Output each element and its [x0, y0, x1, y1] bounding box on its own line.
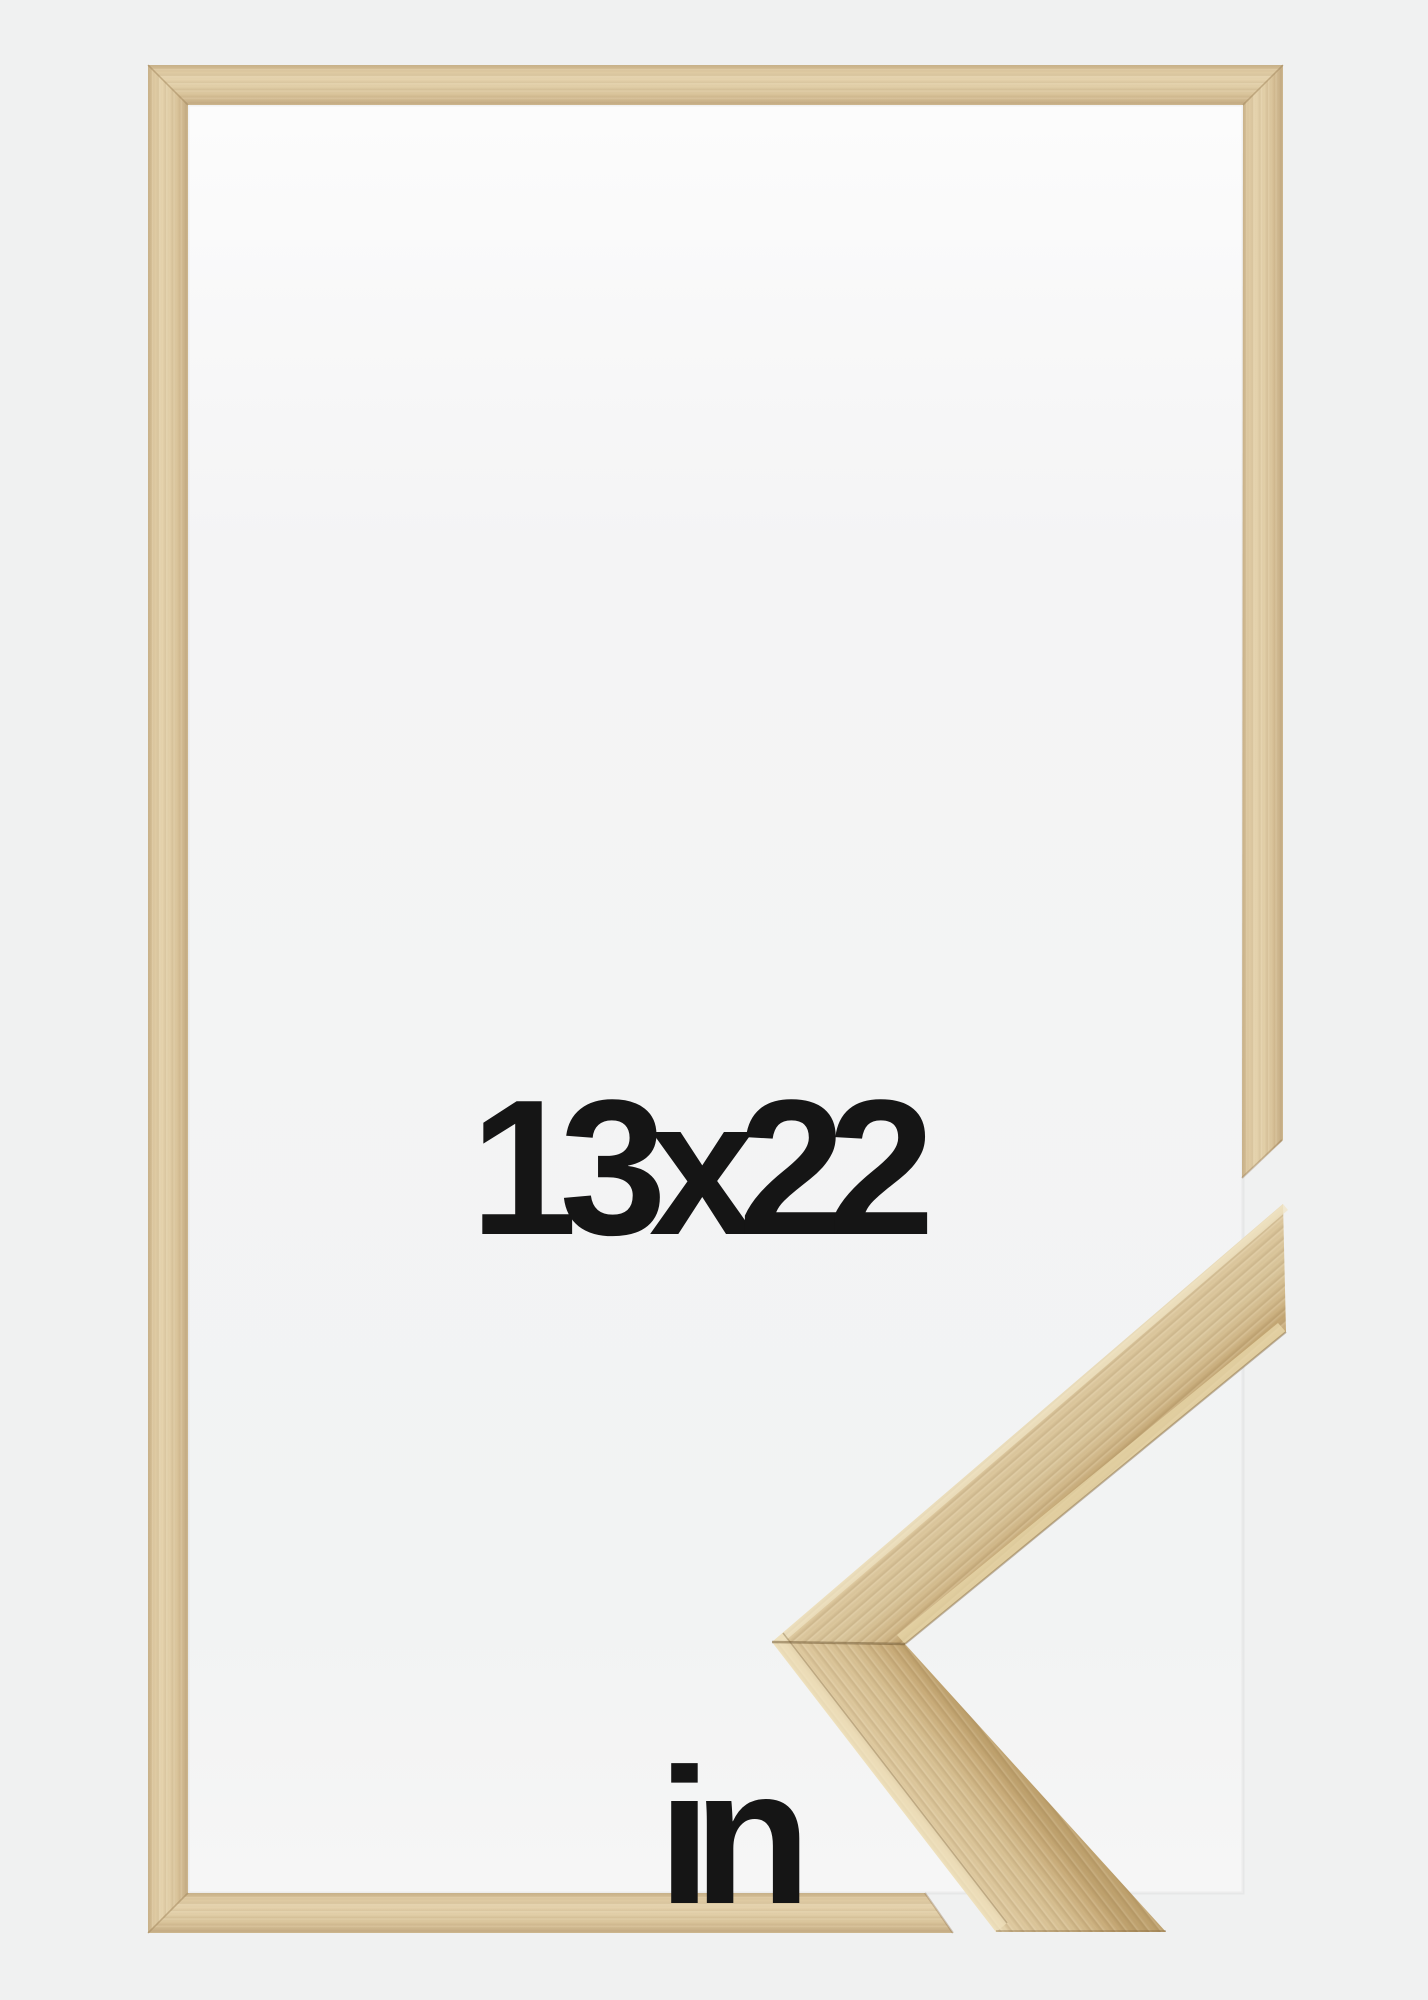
frame-product-image: 13x22 in	[0, 0, 1428, 2000]
size-label: 13x22 in	[148, 610, 1283, 2000]
frame-top-bar	[148, 65, 1283, 105]
size-unit-text: in	[158, 1725, 1293, 1948]
size-dimensions-text: 13x22	[126, 1056, 1261, 1279]
